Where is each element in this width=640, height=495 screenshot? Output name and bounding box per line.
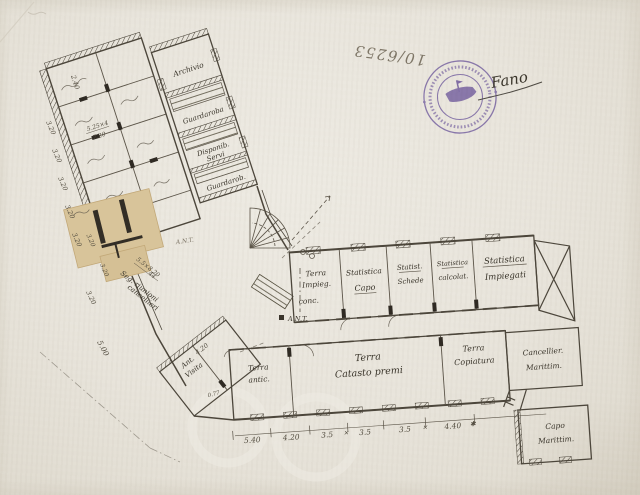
dim-bottom-5: 3.5 — [399, 424, 412, 434]
room-label-terra-impieg-3: conc. — [298, 296, 319, 306]
room-label-stat-capo-1: Statistica — [346, 266, 383, 277]
room-label-cancellier-1: Cancellier. — [522, 346, 563, 358]
dim-bottom-4: 3.5 — [359, 427, 372, 437]
dim-bottom-1: 5.40 — [244, 435, 262, 445]
ship-emblem — [444, 78, 478, 103]
label-ant-upper: A.N.T. — [174, 237, 194, 247]
room-label-stat-capo-2: Capo — [354, 283, 376, 293]
stair-run — [251, 274, 293, 308]
dim-bottom-6: 4.40 — [443, 421, 462, 431]
room-label-capo-marittimo-1: Capo — [545, 421, 566, 431]
room-label-catasto-2: Catasto premi — [335, 365, 404, 381]
room-label-copiatura-1: Terra — [462, 343, 485, 354]
area-calc-denominator: 7.20 — [92, 131, 107, 142]
annotations: 10/6253 Fano — [352, 41, 542, 100]
dim-top-240: 2.40 — [69, 73, 81, 90]
dim-mark-2: ✕ — [422, 424, 428, 431]
room-label-catasto-1: Terra — [355, 351, 382, 364]
pencil-smudge — [28, 12, 46, 14]
room-label-capo-marittimo-2: Marittim. — [537, 434, 575, 446]
dim-500: 5.00 — [95, 339, 111, 358]
ant-marker — [279, 315, 284, 320]
dim-mark-1: ✕ — [343, 430, 349, 437]
area-calc-numerator: 5.25×4 — [86, 119, 109, 133]
door-swing — [388, 315, 400, 327]
room-label-cancellier-2: Marittim. — [525, 361, 563, 373]
room-label-terra-impieg-1: Terra — [305, 268, 326, 278]
marittima-rooms: Cancellier. Marittim. Capo Marittim. — [498, 327, 591, 467]
stair-fan — [250, 208, 290, 248]
dim-bottom-2: 4.20 — [282, 432, 301, 442]
room-label-stat-schede-1: Statist. — [397, 262, 423, 272]
floor-plan-drawing: 5.25×4 7.20 Archivio Guardaroba — [0, 0, 640, 495]
room-label-terra-antic-2: antic. — [248, 374, 270, 384]
dim-left-6: 3.20 — [84, 289, 98, 306]
archive-number: 10/6253 — [352, 41, 427, 69]
room-label-stat-calcolat-2: calcolat. — [438, 272, 468, 282]
cross-braced-room — [534, 238, 575, 323]
dim-mark-3: ✱ — [470, 420, 478, 428]
corner-fold — [0, 2, 34, 42]
room-label-archivio: Archivio — [171, 60, 205, 79]
dim-bottom-3: 3.5 — [321, 430, 334, 440]
room-label-stat-schede-2: Schede — [397, 276, 423, 286]
window-piers-top — [306, 234, 500, 255]
scanned-paper: 5.25×4 7.20 Archivio Guardaroba — [0, 0, 640, 495]
room-label-terra-impieg-2: Impieg. — [301, 279, 331, 290]
dim-left-2: 3.20 — [50, 148, 63, 164]
door-jambs-statistica — [341, 299, 478, 318]
room-label-terra-antic-1: Terra — [248, 362, 269, 372]
door-swing — [340, 318, 352, 330]
diagonal-passage — [503, 389, 528, 412]
room-label-stat-impiegati-1: Statistica — [484, 254, 525, 267]
room-label-copiatura-2: Copiatura — [454, 355, 495, 367]
door-swing — [301, 344, 314, 357]
room-label-stat-impiegati-2: Impiegati — [484, 270, 527, 283]
dim-left-3: 3.20 — [56, 176, 69, 192]
dim-left-1: 3.20 — [44, 120, 57, 136]
